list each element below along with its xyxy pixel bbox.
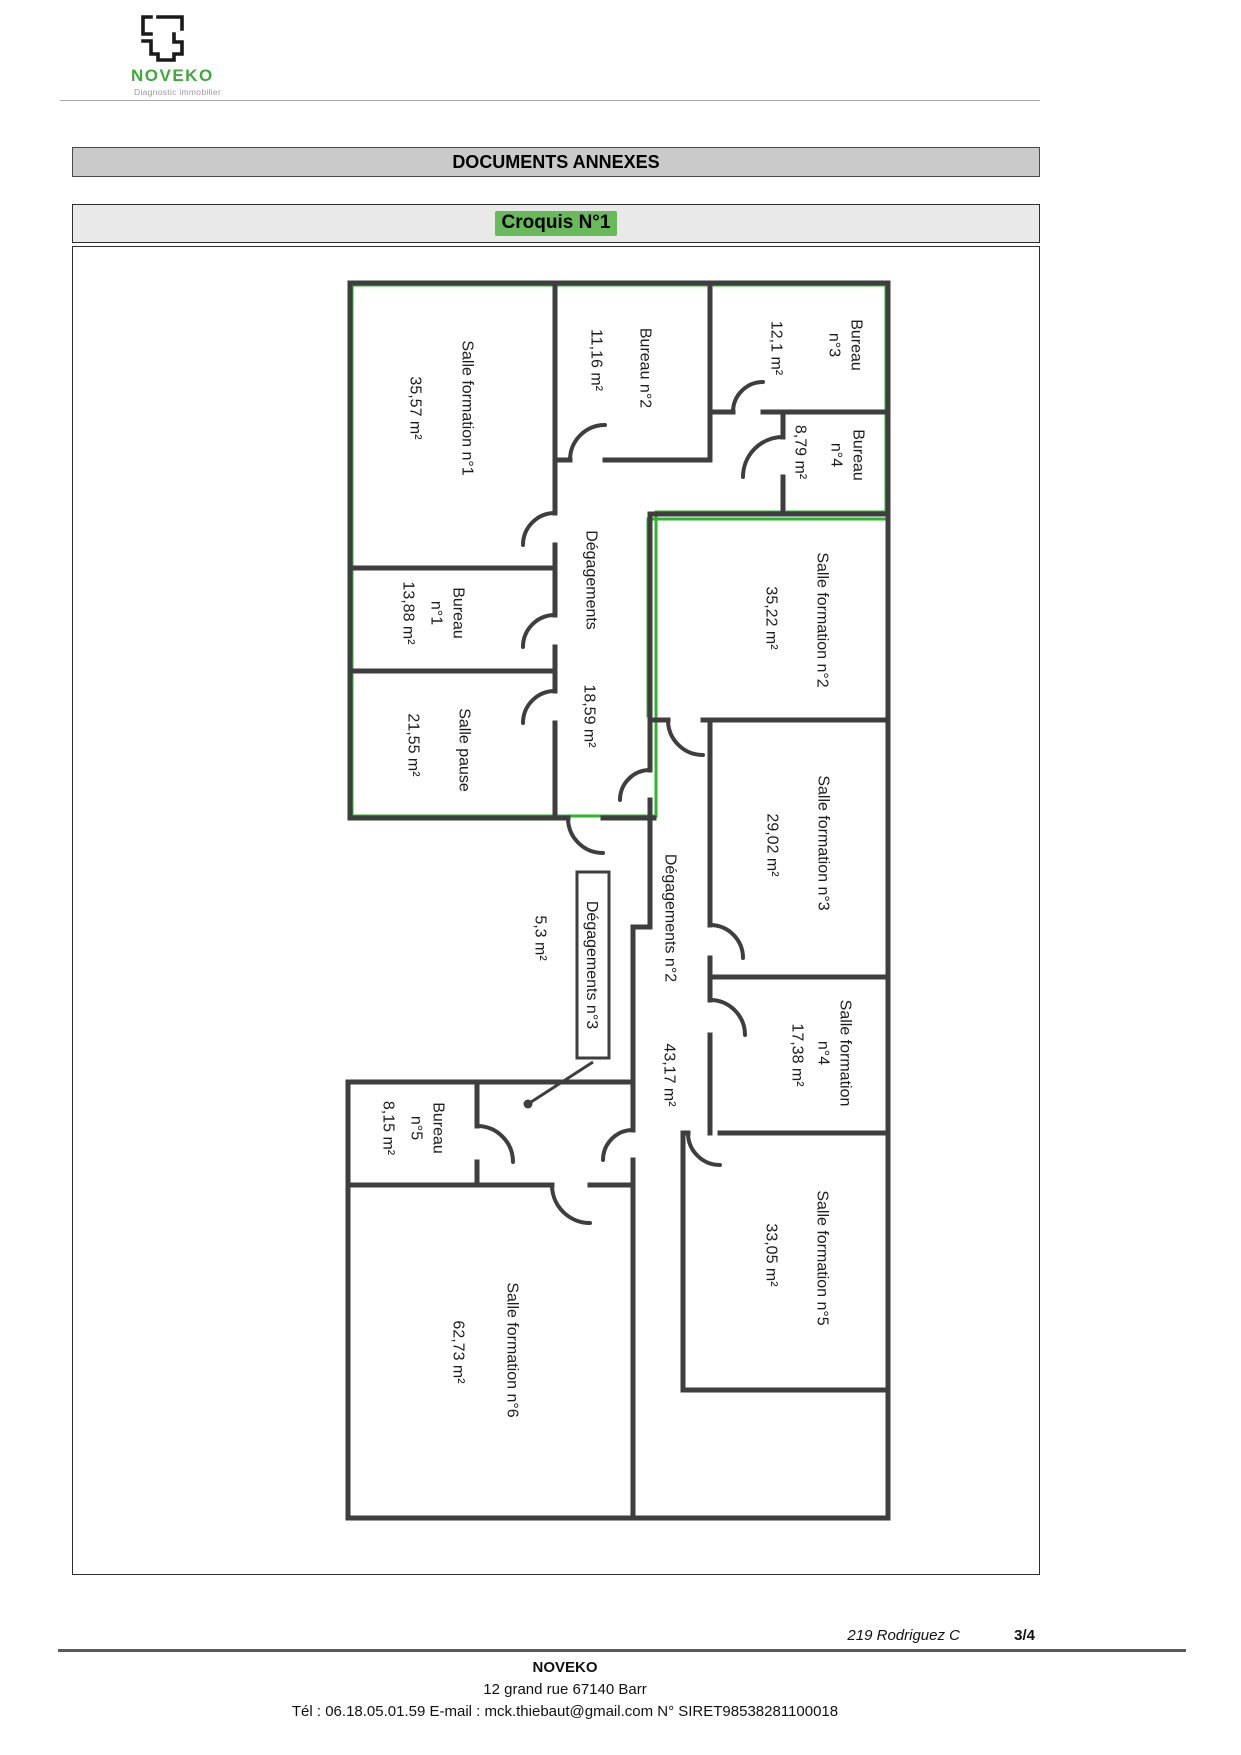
footer-address: 12 grand rue 67140 Barr (0, 1679, 1130, 1701)
croquis-header: Croquis N°1 (72, 204, 1040, 243)
door-arcs (477, 382, 783, 1223)
room-label: Dégagements (583, 530, 600, 630)
door-arc-set (477, 382, 783, 1223)
footer-page-number: 3/4 (985, 1627, 1035, 1644)
footer-company: NOVEKO (0, 1657, 1130, 1679)
room-area: 13,88 m² (400, 581, 417, 645)
footer-divider (58, 1649, 1186, 1652)
header-divider (60, 100, 1040, 101)
room-label: Salle formation n°5 (814, 1190, 831, 1325)
room-label: Salle formation n°1 (459, 340, 476, 475)
room-label: n°5 (408, 1116, 425, 1140)
room-area: 21,55 m² (405, 713, 422, 777)
footer-block: NOVEKO 12 grand rue 67140 Barr Tél : 06.… (0, 1657, 1130, 1723)
room-area: 35,22 m² (763, 586, 780, 650)
lot1-outline (352, 285, 886, 816)
room-area: 5,3 m² (532, 915, 549, 961)
room-area: 8,15 m² (380, 1101, 397, 1156)
room-label: n°3 (826, 333, 843, 357)
room-label: Salle formation n°3 (815, 775, 832, 910)
room-area: 8,79 m² (792, 425, 809, 480)
room-area: 35,57 m² (407, 376, 424, 440)
room-area: 62,73 m² (450, 1320, 467, 1384)
footer-reference: 219 Rodriguez C (790, 1627, 960, 1644)
room-label: Salle formation n°6 (504, 1282, 521, 1417)
room-labels: Salle formation n°1 35,57 m² Bureau n°2 … (380, 319, 867, 1418)
documents-annexes-header: DOCUMENTS ANNEXES (72, 147, 1040, 177)
documents-annexes-title: DOCUMENTS ANNEXES (452, 152, 659, 173)
room-label: n°4 (828, 443, 845, 467)
room-label: n°4 (815, 1041, 832, 1065)
room-area: 43,17 m² (661, 1043, 678, 1107)
room-label: Bureau (850, 429, 867, 481)
room-area: 17,38 m² (789, 1023, 806, 1087)
room-label: Bureau n°2 (637, 328, 654, 408)
room-area: 29,02 m² (764, 813, 781, 877)
room-label: Dégagements n°3 (583, 901, 600, 1029)
room-area: 33,05 m² (763, 1223, 780, 1287)
callout-leader-dot (524, 1100, 533, 1109)
room-label: Dégagements n°2 (662, 854, 679, 982)
floorplan-canvas: Salle formation n°1 35,57 m² Bureau n°2 … (72, 246, 1038, 1573)
room-area: 11,16 m² (588, 329, 605, 392)
room-label: Bureau (848, 319, 865, 371)
room-label: Salle pause (456, 708, 473, 792)
degagements3-callout: Dégagements n°3 (524, 872, 610, 1109)
room-label: Salle formation n°2 (814, 552, 831, 687)
noveko-wordmark: NOVEKO (131, 66, 214, 86)
room-label: Bureau (430, 1102, 447, 1154)
croquis-title: Croquis N°1 (495, 211, 618, 236)
room-label: n°1 (428, 601, 445, 625)
lot-outline (352, 285, 886, 816)
room-label: Bureau (450, 587, 467, 639)
room-label: Salle formation (837, 1000, 854, 1107)
room-area: 12,1 m² (768, 321, 785, 376)
document-page: NOVEKO Diagnostic immobilier DOCUMENTS A… (0, 0, 1241, 1755)
footer-contact: Tél : 06.18.05.01.59 E-mail : mck.thieba… (0, 1701, 1130, 1723)
noveko-logo-icon (140, 14, 192, 64)
logo-tagline: Diagnostic immobilier (134, 87, 221, 97)
room-area: 18,59 m² (581, 684, 598, 748)
